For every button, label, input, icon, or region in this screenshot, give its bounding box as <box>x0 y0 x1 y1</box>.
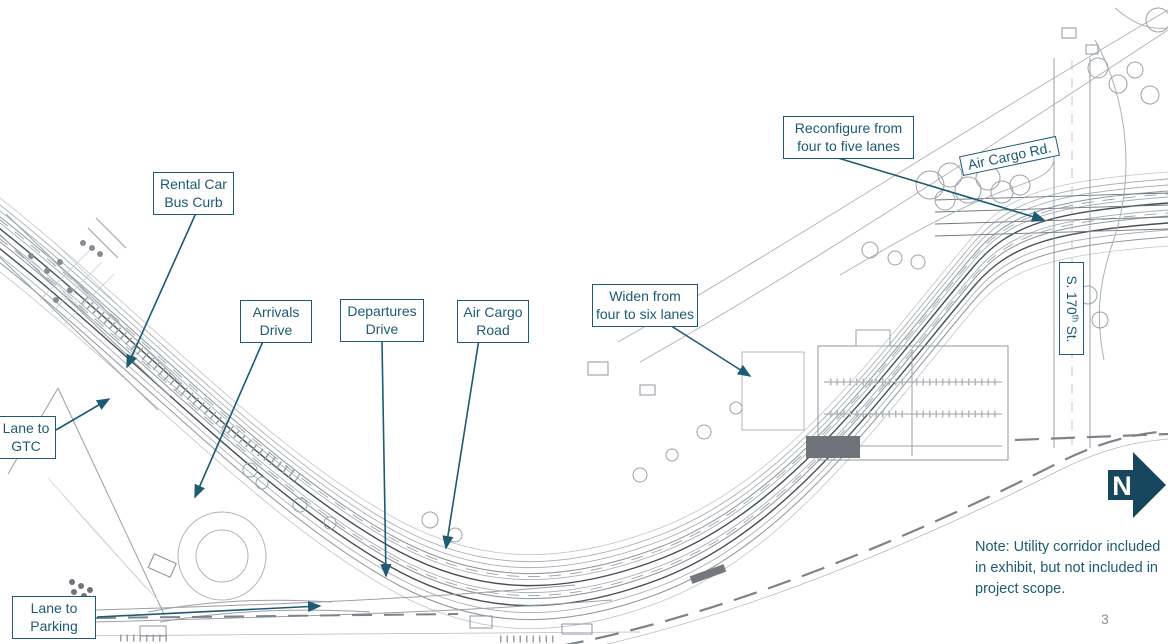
callout-lane-to-gtc: Lane to GTC <box>0 416 56 459</box>
road-label-s-170th-st: S. 170th St. <box>1059 262 1084 355</box>
leader-widen <box>665 322 750 376</box>
north-letter: N <box>1112 471 1132 501</box>
callout-arrivals-drive: Arrivals Drive <box>240 300 312 343</box>
s-170th-street <box>1054 40 1126 448</box>
tree-canopies <box>243 8 1168 542</box>
parking-lot <box>742 330 1008 460</box>
leader-lane-to-gtc <box>56 399 109 430</box>
note-text: Note: Utility corridor included in exhib… <box>975 537 1160 600</box>
callout-air-cargo-road: Air Cargo Road <box>457 300 529 343</box>
leader-departures-drive <box>382 342 386 576</box>
callout-rental-car-bus-curb: Rental Car Bus Curb <box>153 172 234 215</box>
slide-roadway-exhibit: N Rental Car Bus Curb Arrivals Drive Dep… <box>0 0 1168 644</box>
callout-widen: Widen from four to six lanes <box>592 284 698 327</box>
callout-departures-drive: Departures Drive <box>340 299 424 342</box>
leader-air-cargo-road <box>446 339 479 548</box>
callout-reconfigure: Reconfigure from four to five lanes <box>783 116 914 159</box>
north-arrow-icon: N <box>1108 452 1166 518</box>
callout-lane-to-parking: Lane to Parking <box>12 596 96 639</box>
upper-right-road <box>618 10 1168 362</box>
page-number: 3 <box>1101 611 1109 627</box>
